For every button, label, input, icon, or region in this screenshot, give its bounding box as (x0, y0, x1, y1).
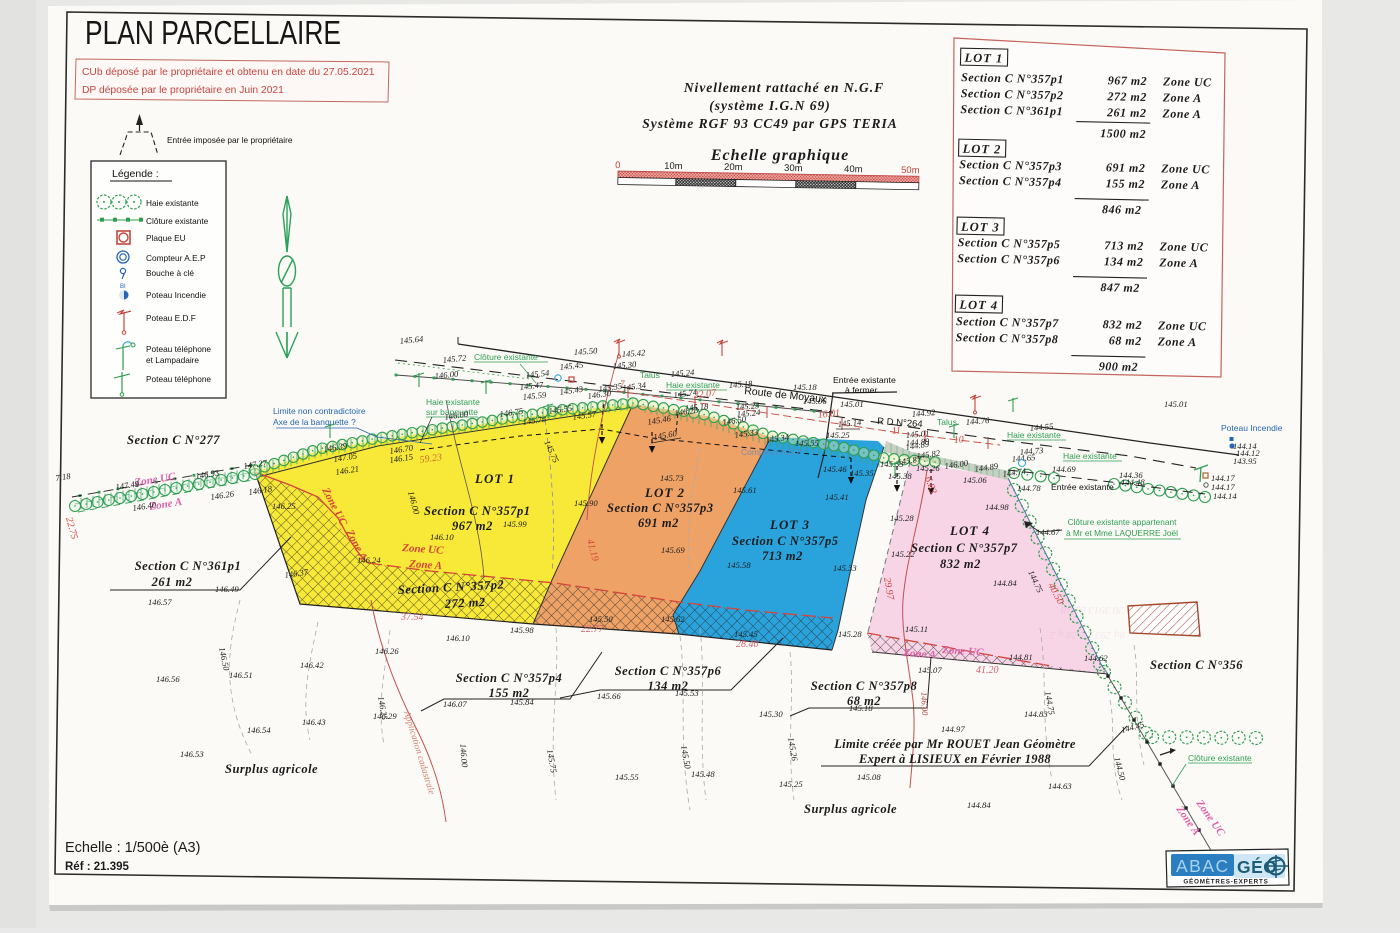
svg-text:144.55: 144.55 (1029, 421, 1054, 433)
svg-text:146.26: 146.26 (375, 646, 399, 656)
svg-text:145.33: 145.33 (833, 563, 857, 573)
svg-text:8q 293 E2 28 q 2: 8q 293 E2 28 q 2 (1049, 629, 1125, 641)
svg-text:LOT 2: LOT 2 (962, 142, 1002, 157)
svg-text:145.22: 145.22 (891, 549, 915, 559)
svg-text:144.62: 144.62 (1084, 653, 1108, 663)
svg-text:Section C N°357p8: Section C N°357p8 (956, 330, 1059, 346)
svg-text:145.50: 145.50 (573, 345, 598, 357)
svg-text:144.84: 144.84 (967, 800, 991, 810)
svg-text:145.61: 145.61 (733, 485, 757, 495)
svg-text:261 m2: 261 m2 (151, 575, 193, 589)
svg-text:Section C N°357p1: Section C N°357p1 (424, 504, 531, 518)
svg-text:LOT 1: LOT 1 (963, 51, 1003, 66)
svg-text:Entrée existante: Entrée existante (833, 375, 896, 385)
svg-text:Section C N°361p1: Section C N°361p1 (135, 559, 242, 573)
svg-text:Surplus agricole: Surplus agricole (804, 802, 897, 816)
svg-text:(système I.G.N 69): (système I.G.N 69) (709, 98, 830, 113)
svg-text:144.14: 144.14 (1213, 491, 1237, 501)
svg-text:68 m2: 68 m2 (1109, 333, 1142, 348)
svg-text:Section C N°357p4: Section C N°357p4 (959, 173, 1062, 189)
svg-text:LOT 3: LOT 3 (769, 517, 810, 532)
svg-text:146.42: 146.42 (300, 660, 324, 670)
svg-text:Limite créée par Mr ROUET: Limite créée par Mr ROUET Jean Géomètre (833, 737, 1076, 751)
svg-text:272 m2: 272 m2 (443, 595, 486, 611)
svg-text:22.77: 22.77 (581, 624, 605, 635)
svg-text:Zone UC: Zone UC (1160, 161, 1210, 176)
svg-text:Zone A: Zone A (1160, 177, 1200, 192)
svg-text:145.18: 145.18 (728, 378, 753, 390)
svg-text:Plaque EU: Plaque EU (146, 233, 186, 243)
svg-text:145.06: 145.06 (963, 475, 987, 485)
svg-text:Section C N°357p7: Section C N°357p7 (956, 314, 1059, 330)
svg-text:145.28: 145.28 (838, 629, 862, 639)
svg-text:146.25: 146.25 (272, 501, 296, 511)
svg-text:145.25: 145.25 (779, 779, 803, 789)
svg-text:146.51: 146.51 (229, 670, 253, 680)
svg-text:145.90: 145.90 (574, 498, 598, 508)
svg-text:145.42: 145.42 (621, 347, 646, 359)
svg-text:145.26: 145.26 (916, 463, 940, 473)
svg-text:145.46: 145.46 (823, 464, 847, 474)
svg-text:37.54: 37.54 (400, 612, 424, 623)
svg-text:20m: 20m (724, 162, 743, 173)
svg-text:Section C N°356: Section C N°356 (1150, 658, 1243, 672)
svg-text:144.84: 144.84 (993, 578, 1017, 588)
svg-text:Zone A: Zone A (1157, 334, 1197, 349)
svg-text:Section C N°357p3: Section C N°357p3 (607, 501, 714, 515)
svg-text:146.10: 146.10 (446, 633, 470, 643)
svg-text:Zone A: Zone A (1158, 255, 1198, 270)
svg-text:40m: 40m (844, 164, 863, 175)
svg-text:144.78: 144.78 (1017, 483, 1041, 493)
svg-text:Bouche à clé: Bouche à clé (146, 268, 194, 278)
svg-text:145.01: 145.01 (840, 399, 864, 409)
svg-text:GÉOMÈTRES-EXPERTS: GÉOMÈTRES-EXPERTS (1183, 877, 1268, 886)
svg-text:145.98: 145.98 (510, 625, 534, 635)
svg-text:146.24: 146.24 (357, 555, 381, 565)
svg-text:144.67: 144.67 (1036, 527, 1060, 537)
svg-text:Clôture existante: Clôture existante (1188, 753, 1252, 763)
svg-text:41.20: 41.20 (976, 665, 999, 676)
svg-text:Nivellement rattaché en N.G.F: Nivellement rattaché en N.G.F (683, 80, 884, 95)
svg-text:145.55: 145.55 (615, 772, 639, 782)
svg-text:Haie existante: Haie existante (426, 397, 480, 407)
svg-text:145.07: 145.07 (918, 665, 942, 675)
svg-text:Zone UC: Zone UC (1159, 239, 1209, 254)
svg-text:145.50: 145.50 (589, 614, 613, 624)
svg-text:Talus: Talus (640, 370, 660, 380)
svg-text:713 m2: 713 m2 (762, 549, 803, 563)
svg-text:50m: 50m (901, 165, 920, 176)
svg-text:CUb déposé par le propriétaire: CUb déposé par le propriétaire et obtenu… (82, 67, 375, 78)
svg-text:144.81: 144.81 (1009, 652, 1033, 662)
svg-text:155 m2: 155 m2 (1106, 176, 1146, 191)
svg-text:145.35: 145.35 (850, 468, 874, 478)
svg-text:146.00: 146.00 (919, 692, 930, 717)
svg-text:Entrée existante: Entrée existante (1051, 482, 1114, 492)
svg-text:Surplus agricole: Surplus agricole (225, 762, 318, 776)
svg-text:Section C N°357p6: Section C N°357p6 (615, 664, 722, 678)
svg-text:Poteau E.D.F: Poteau E.D.F (146, 313, 196, 323)
svg-text:144.69: 144.69 (1052, 464, 1076, 474)
svg-text:145.24: 145.24 (670, 367, 695, 379)
svg-text:146.54: 146.54 (247, 725, 271, 735)
svg-text:à Mr et Mme LAQUERRE Joël: à Mr et Mme LAQUERRE Joël (1066, 528, 1178, 538)
svg-text:145.25: 145.25 (826, 430, 850, 440)
svg-text:967 m2: 967 m2 (452, 519, 493, 533)
svg-text:146.53: 146.53 (180, 749, 204, 759)
svg-text:145.73: 145.73 (660, 473, 684, 483)
svg-text:LOT 4: LOT 4 (958, 298, 998, 313)
svg-text:LOT 4: LOT 4 (949, 523, 990, 538)
svg-text:Clôture existante: Clôture existante (146, 216, 209, 226)
svg-text:144.76: 144.76 (965, 415, 990, 427)
svg-text:145.66: 145.66 (597, 691, 621, 701)
svg-text:832 m2: 832 m2 (1103, 317, 1143, 332)
svg-text:LOT 3: LOT 3 (960, 220, 1000, 235)
svg-text:900 m2: 900 m2 (1099, 359, 1139, 374)
svg-text:Limite non contradictoire: Limite non contradictoire (273, 406, 366, 416)
svg-text:145.18: 145.18 (793, 382, 817, 392)
svg-text:Expert à LISIEUX en Févrie: Expert à LISIEUX en Février 1988 (858, 752, 1051, 766)
svg-text:Section C N°357p3: Section C N°357p3 (959, 157, 1062, 173)
svg-text:145.41: 145.41 (825, 492, 849, 502)
svg-text:0: 0 (615, 160, 620, 171)
svg-text:145.69: 145.69 (661, 545, 685, 555)
svg-text:146.07: 146.07 (443, 699, 467, 709)
svg-text:Clôture existante appartenant: Clôture existante appartenant (1068, 517, 1178, 527)
svg-text:Zone A: Zone A (1161, 106, 1201, 121)
svg-text:Echelle : 1/500è (A3): Echelle : 1/500è (A3) (65, 840, 200, 856)
svg-text:145.55: 145.55 (795, 438, 819, 448)
svg-text:144.92: 144.92 (911, 407, 936, 419)
svg-text:11: 11 (891, 425, 901, 437)
svg-text:Clôture existante: Clôture existante (474, 352, 538, 362)
svg-text:145.14: 145.14 (837, 417, 862, 429)
svg-text:PLAN PARCELLAIRE: PLAN PARCELLAIRE (85, 14, 341, 51)
svg-text:832 m2: 832 m2 (940, 557, 981, 571)
svg-text:7: 7 (620, 379, 625, 389)
svg-text:144.63: 144.63 (1048, 781, 1072, 791)
svg-text:143.95: 143.95 (1233, 456, 1257, 466)
svg-text:145.08: 145.08 (857, 772, 881, 782)
svg-text:145.84: 145.84 (510, 697, 534, 707)
svg-text:145.11: 145.11 (905, 624, 928, 634)
svg-text:LOT 1: LOT 1 (474, 471, 515, 486)
svg-text:Section C N°357p2: Section C N°357p2 (961, 86, 1064, 102)
svg-text:30m: 30m (784, 163, 803, 174)
svg-text:LOT 2: LOT 2 (644, 485, 685, 500)
svg-text:146.57: 146.57 (148, 597, 172, 607)
svg-text:144.65: 144.65 (1011, 452, 1036, 464)
svg-text:144.89: 144.89 (905, 436, 930, 448)
svg-text:146.10: 146.10 (430, 532, 454, 542)
svg-text:Axe de la banquette ?: Axe de la banquette ? (273, 417, 356, 427)
svg-text:Section C N°357p7: Section C N°357p7 (911, 541, 1018, 555)
svg-text:Section C N°357p1: Section C N°357p1 (961, 70, 1064, 86)
svg-text:28.40: 28.40 (736, 639, 759, 650)
svg-text:10: 10 (953, 434, 964, 446)
svg-text:Zone UC: Zone UC (1157, 318, 1207, 333)
svg-text:20 3913 82 38: 20 3913 82 38 (1060, 604, 1124, 616)
svg-text:1500 m2: 1500 m2 (1100, 126, 1146, 141)
svg-text:847 m2: 847 m2 (1100, 280, 1140, 295)
svg-text:145.53: 145.53 (675, 688, 699, 698)
svg-text:145.30: 145.30 (612, 359, 637, 371)
svg-text:145.48: 145.48 (691, 769, 715, 779)
svg-text:Poteau Incendie: Poteau Incendie (1221, 423, 1283, 433)
svg-text:145.38: 145.38 (888, 471, 912, 481)
svg-text:Zone A: Zone A (1162, 90, 1202, 105)
svg-text:Haie existante: Haie existante (1063, 451, 1117, 461)
svg-text:134 m2: 134 m2 (1104, 254, 1144, 269)
svg-text:144.48: 144.48 (1121, 477, 1145, 487)
svg-text:145.45: 145.45 (734, 629, 758, 639)
svg-text:Haie existante: Haie existante (146, 198, 199, 208)
svg-text:Zone UC: Zone UC (1162, 74, 1212, 89)
svg-text:Entrée imposée par le propriét: Entrée imposée par le propriétaire (167, 135, 293, 145)
svg-text:Compteur A.E.P: Compteur A.E.P (146, 253, 206, 263)
svg-text:146.00: 146.00 (458, 743, 470, 768)
svg-text:145.99: 145.99 (503, 519, 527, 529)
svg-text:Zone A: Zone A (902, 647, 937, 661)
svg-text:144.98: 144.98 (985, 502, 1009, 512)
svg-text:DP déposée par le propriétaire: DP déposée par le propriétaire en Juin 2… (82, 85, 284, 96)
svg-text:et Lampadaire: et Lampadaire (146, 355, 199, 365)
svg-text:846 m2: 846 m2 (1102, 202, 1142, 217)
svg-text:146.49: 146.49 (215, 584, 239, 594)
svg-text:145.30: 145.30 (759, 709, 783, 719)
svg-text:145.28: 145.28 (890, 513, 914, 523)
svg-text:Poteau Incendie: Poteau Incendie (146, 290, 206, 300)
svg-text:Section C N°361p1: Section C N°361p1 (960, 102, 1063, 118)
svg-text:Système RGF 93 CC49 par GPS: Système RGF 93 CC49 par GPS TERIA (642, 116, 898, 131)
svg-text:272 m2: 272 m2 (1106, 89, 1147, 104)
svg-text:Section C N°357p5: Section C N°357p5 (732, 534, 839, 548)
svg-text:967 m2: 967 m2 (1108, 73, 1148, 88)
svg-text:Réf : 21.395: Réf : 21.395 (65, 861, 130, 873)
svg-text:261 m2: 261 m2 (1106, 105, 1147, 120)
svg-text:Légende :: Légende : (112, 168, 159, 180)
svg-text:146.56: 146.56 (156, 674, 180, 684)
svg-text:691 m2: 691 m2 (1106, 160, 1146, 175)
svg-text:145.01: 145.01 (1164, 399, 1188, 409)
svg-text:145.06: 145.06 (803, 396, 827, 406)
svg-text:BI: BI (120, 284, 126, 290)
svg-text:145.62: 145.62 (661, 614, 685, 624)
svg-text:Section C N°357p4: Section C N°357p4 (456, 671, 563, 685)
svg-text:145.58: 145.58 (727, 560, 751, 570)
svg-text:Section C N°357p6: Section C N°357p6 (957, 251, 1060, 267)
svg-text:144.97: 144.97 (941, 724, 965, 734)
svg-text:Poteau téléphone: Poteau téléphone (146, 374, 211, 384)
svg-text:10m: 10m (664, 161, 683, 172)
svg-text:ABAC: ABAC (1176, 856, 1230, 876)
svg-text:146.43: 146.43 (302, 717, 326, 727)
svg-text:144.83: 144.83 (1024, 709, 1048, 719)
svg-text:691 m2: 691 m2 (638, 516, 679, 530)
svg-text:Zone A: Zone A (408, 558, 443, 572)
svg-text:Section C N°357p8: Section C N°357p8 (811, 679, 918, 693)
svg-text:à fermer: à fermer (845, 385, 877, 395)
svg-text:Section C N°357p5: Section C N°357p5 (958, 235, 1061, 251)
svg-text:713 m2: 713 m2 (1104, 238, 1144, 253)
svg-text:Section C N°277: Section C N°277 (127, 433, 220, 447)
svg-text:Compteur A.E.P: Compteur A.E.P (741, 447, 802, 457)
svg-text:145.18: 145.18 (849, 703, 873, 713)
svg-text:Poteau téléphone: Poteau téléphone (146, 344, 211, 354)
